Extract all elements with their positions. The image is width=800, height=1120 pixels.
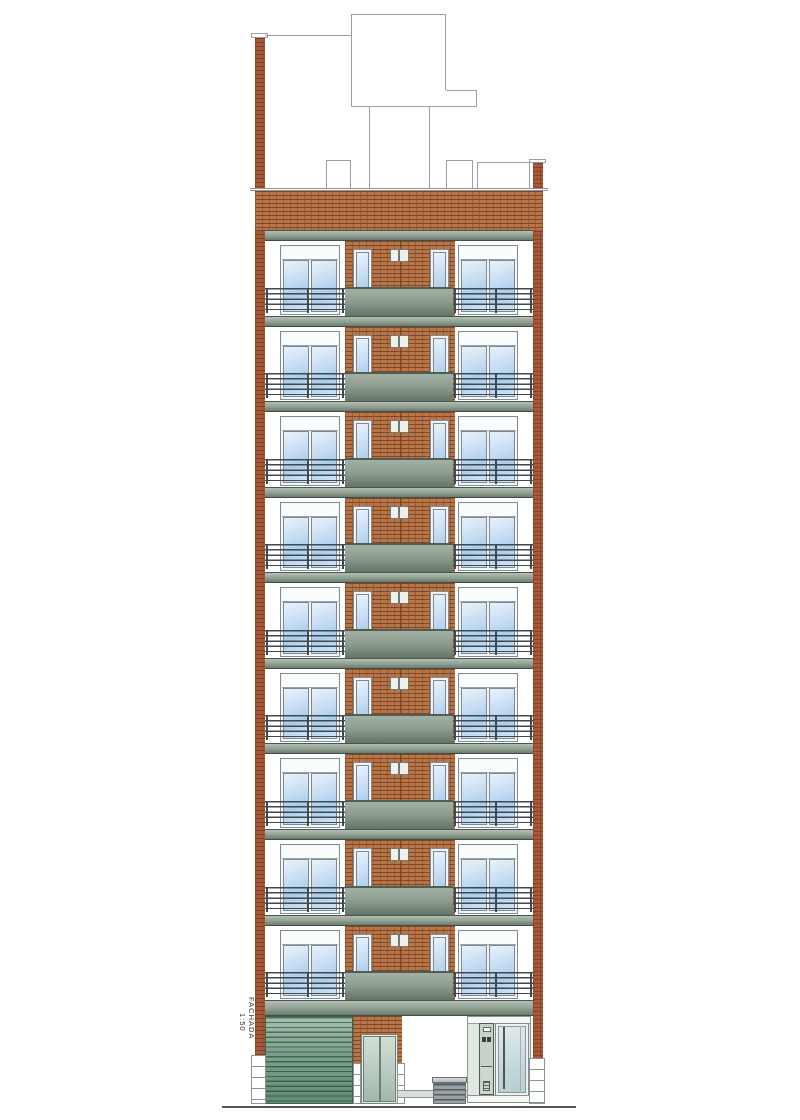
typical-floor <box>265 743 533 829</box>
vent-right <box>399 591 409 604</box>
ground-line <box>222 1106 576 1108</box>
floor-wall <box>265 754 533 829</box>
balcony-parapet <box>345 629 453 658</box>
intercom-button <box>487 1037 491 1042</box>
typical-floor <box>265 230 533 316</box>
vent-right <box>399 335 409 348</box>
window-transom <box>282 760 338 773</box>
balcony <box>265 801 533 829</box>
balcony-parapet <box>345 543 453 572</box>
window-transom <box>282 504 338 517</box>
drawing-title-text: FACHADA <box>247 997 256 1039</box>
floor-slab <box>265 230 533 241</box>
typical-floor <box>265 316 533 402</box>
roof-box-far-right <box>477 162 530 188</box>
vent-right <box>399 420 409 433</box>
roof-joint-line <box>429 107 430 188</box>
floor-wall <box>265 498 533 573</box>
railing-bars <box>453 544 533 570</box>
door-handle <box>503 1027 505 1089</box>
balcony-railing-right <box>453 972 533 1000</box>
roof-step-line <box>446 90 477 91</box>
vent-left <box>390 506 399 519</box>
floor-wall <box>265 926 533 1001</box>
typical-floor <box>265 487 533 573</box>
window-transom <box>460 589 516 602</box>
vent-left <box>390 762 399 775</box>
balcony-railing-right <box>453 715 533 743</box>
vent-right <box>399 249 409 262</box>
right-brick-pier <box>533 163 543 1058</box>
window-transom <box>460 846 516 859</box>
entrance-storefront <box>467 1016 531 1103</box>
window-transom <box>460 760 516 773</box>
railing-bars <box>265 801 345 827</box>
roof-joint-line <box>369 107 370 188</box>
railing-bars <box>453 288 533 314</box>
railing-bars <box>453 801 533 827</box>
roof-structure-lower <box>351 90 477 107</box>
roof-structure-upper <box>351 14 446 90</box>
balcony-railing-left <box>265 715 345 743</box>
balcony-parapet <box>345 971 453 1000</box>
floor-slab <box>265 316 533 327</box>
balcony <box>265 459 533 487</box>
vent-left <box>390 677 399 690</box>
vent-right <box>399 762 409 775</box>
window-transom <box>282 846 338 859</box>
window-transom <box>460 932 516 945</box>
typical-floor <box>265 915 533 1001</box>
window-transom <box>282 675 338 688</box>
roof-box-right <box>446 160 473 188</box>
floor-wall <box>265 327 533 402</box>
balcony <box>265 288 533 316</box>
floor-slab <box>265 572 533 583</box>
vent-left <box>390 249 399 262</box>
bin-body <box>433 1083 466 1104</box>
elevation-drawing: FACHADA 1:50 <box>0 0 800 1120</box>
vent-right <box>399 934 409 947</box>
railing-bars <box>265 630 345 656</box>
intercom-nameplate <box>483 1027 491 1032</box>
railing-bars <box>265 288 345 314</box>
garage-roller-door <box>265 1016 353 1104</box>
vent-right <box>399 848 409 861</box>
balcony-railing-left <box>265 288 345 316</box>
railing-bars <box>453 715 533 741</box>
railing-bars <box>453 630 533 656</box>
balcony-railing-right <box>453 801 533 829</box>
vent-left <box>390 420 399 433</box>
balcony <box>265 715 533 743</box>
balcony <box>265 544 533 572</box>
window-transom <box>460 247 516 260</box>
window-transom <box>460 418 516 431</box>
entry-double-door <box>361 1034 398 1104</box>
railing-bars <box>453 972 533 998</box>
floor-wall <box>265 669 533 744</box>
intercom-lower-panel <box>481 1066 492 1093</box>
vent-right <box>399 506 409 519</box>
balcony-parapet <box>345 714 453 743</box>
window-transom <box>460 675 516 688</box>
balcony-parapet <box>345 886 453 915</box>
right-pier-base <box>529 1058 545 1104</box>
sidelight-divider <box>520 1026 521 1093</box>
balcony-parapet <box>345 800 453 829</box>
balcony-railing-left <box>265 459 345 487</box>
floor-slab <box>265 487 533 498</box>
floor-slab <box>265 401 533 412</box>
floor-wall <box>265 583 533 658</box>
roof-line <box>265 35 351 36</box>
window-transom <box>460 504 516 517</box>
entry-pilaster-left <box>353 1063 361 1104</box>
floor-slab <box>265 829 533 840</box>
roof-box-left <box>326 160 351 188</box>
window-transom <box>282 333 338 346</box>
balcony-parapet <box>345 372 453 401</box>
floors <box>265 230 533 1000</box>
floor-wall <box>265 412 533 487</box>
railing-bars <box>265 887 345 913</box>
balcony-railing-left <box>265 801 345 829</box>
balcony-railing-right <box>453 887 533 915</box>
door-leaf <box>363 1036 380 1102</box>
drawing-scale: 1:50 <box>238 1013 247 1032</box>
balcony-parapet <box>345 287 453 316</box>
railing-bars <box>265 972 345 998</box>
vent-right <box>399 677 409 690</box>
floor-wall <box>265 241 533 316</box>
railing-bars <box>453 459 533 485</box>
floor-slab <box>265 658 533 669</box>
balcony-railing-left <box>265 630 345 658</box>
floor-slab <box>265 915 533 926</box>
window-transom <box>282 418 338 431</box>
railing-bars <box>265 373 345 399</box>
balcony-railing-right <box>453 288 533 316</box>
window-transom <box>282 589 338 602</box>
balcony <box>265 972 533 1000</box>
typical-floor <box>265 829 533 915</box>
window-transom <box>282 247 338 260</box>
railing-bars <box>453 887 533 913</box>
balcony-railing-left <box>265 887 345 915</box>
typical-floor <box>265 572 533 658</box>
balcony-railing-left <box>265 544 345 572</box>
drawing-title: FACHADA 1:50 <box>238 983 256 1053</box>
railing-bars <box>453 373 533 399</box>
balcony-railing-right <box>453 630 533 658</box>
vent-left <box>390 591 399 604</box>
typical-floor <box>265 401 533 487</box>
roller-slats <box>266 1017 352 1103</box>
balcony <box>265 373 533 401</box>
window-transom <box>282 932 338 945</box>
entrance-sill <box>467 1095 531 1103</box>
intercom-button <box>482 1037 486 1042</box>
floor-slab <box>265 743 533 754</box>
balcony-railing-right <box>453 373 533 401</box>
left-pier-base <box>251 1055 266 1104</box>
vent-left <box>390 335 399 348</box>
railing-bars <box>265 544 345 570</box>
intercom-louver <box>483 1081 490 1091</box>
balcony <box>265 887 533 915</box>
intercom-panel <box>479 1023 494 1095</box>
railing-bars <box>265 715 345 741</box>
floor-wall <box>265 840 533 915</box>
vent-left <box>390 934 399 947</box>
balcony <box>265 630 533 658</box>
window-transom <box>460 333 516 346</box>
door-leaf <box>380 1036 397 1102</box>
typical-floor <box>265 658 533 744</box>
balcony-railing-left <box>265 972 345 1000</box>
entrance-glass-door <box>495 1023 529 1096</box>
top-brick-band <box>255 191 543 230</box>
balcony-parapet <box>345 458 453 487</box>
vent-left <box>390 848 399 861</box>
louvered-bin <box>432 1077 467 1104</box>
railing-bars <box>265 459 345 485</box>
ground-floor-beam <box>265 1000 533 1016</box>
balcony-railing-right <box>453 544 533 572</box>
balcony-railing-left <box>265 373 345 401</box>
balcony-railing-right <box>453 459 533 487</box>
